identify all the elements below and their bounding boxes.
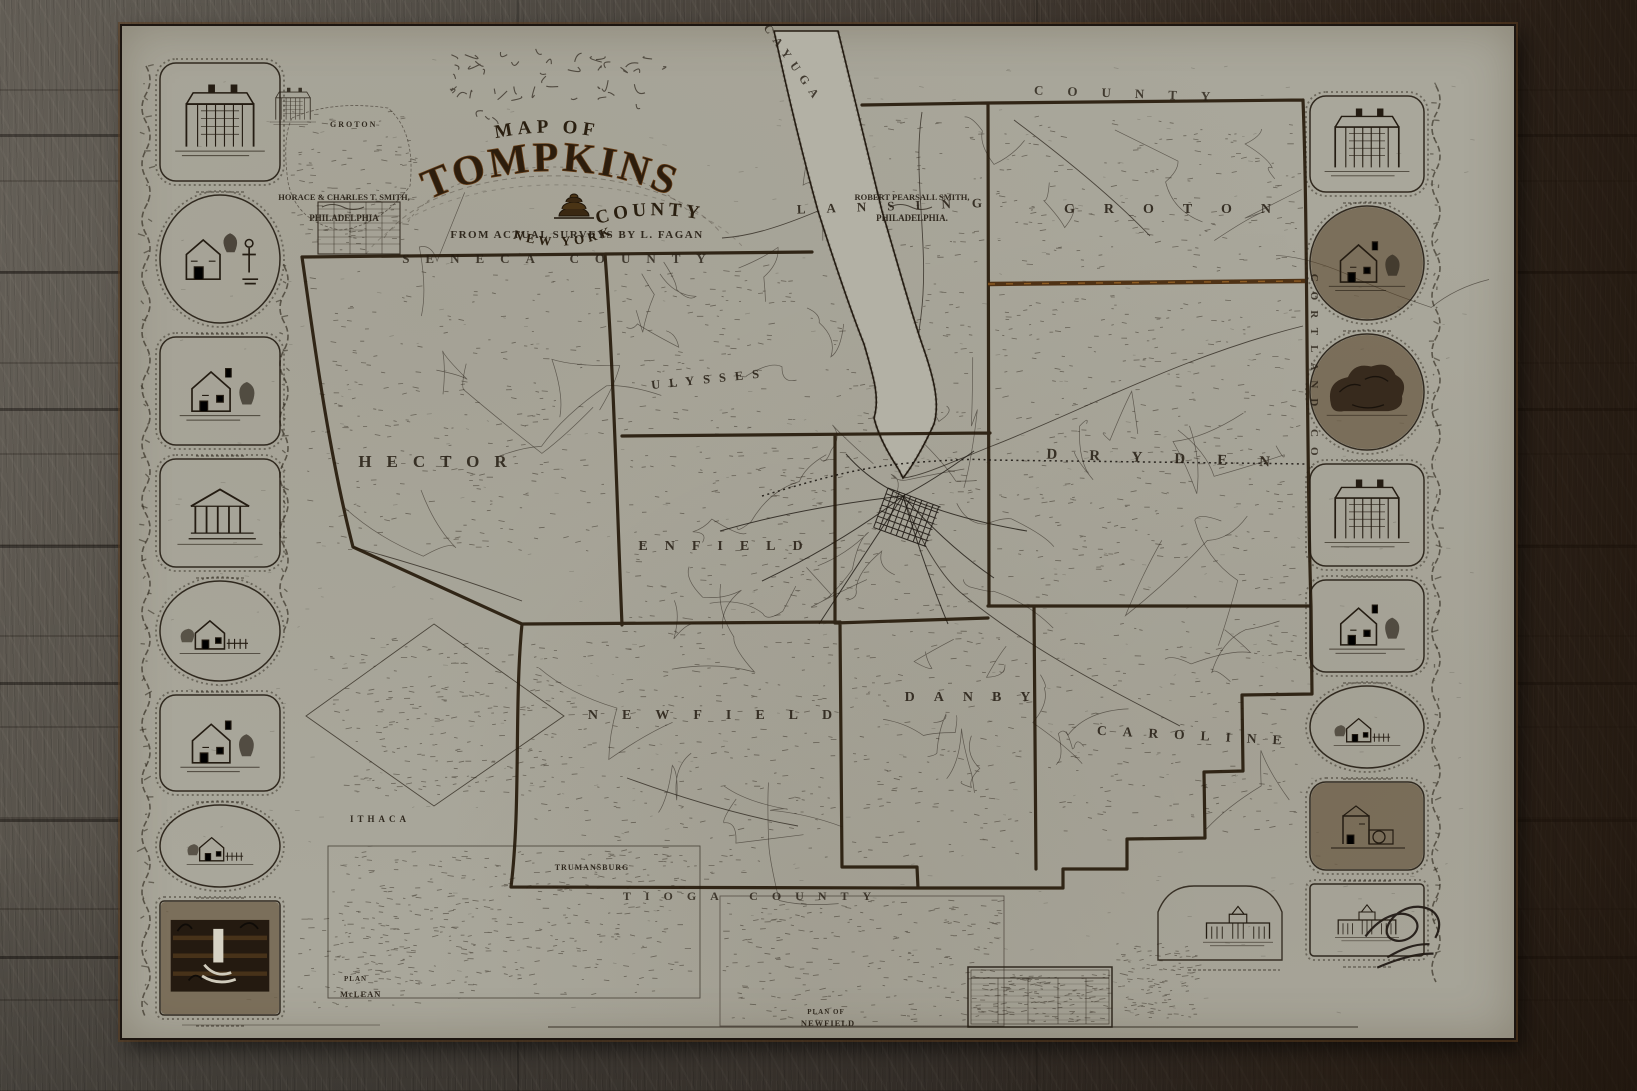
road-line <box>1103 391 1138 440</box>
road-line <box>552 359 620 417</box>
road-line <box>1195 516 1238 645</box>
beehive-icon <box>554 194 594 218</box>
county-label: TIOGA COUNTY <box>623 889 885 903</box>
road-line <box>737 455 826 530</box>
road-line <box>847 551 895 600</box>
newfield-inset-label-1: PLAN OF <box>807 1008 845 1016</box>
engraving-detail <box>1306 460 1428 570</box>
cottage-vignette <box>156 577 284 692</box>
cottage-vignette-sketch <box>180 621 261 653</box>
road-line <box>498 386 661 457</box>
map-sheet-panel: MAP OF TOMPKINS COUNTY NEW YORK <box>120 24 1516 1040</box>
farmhouse-vignette <box>156 801 284 898</box>
road-line <box>345 490 456 556</box>
radiating-road <box>720 496 903 531</box>
road-line <box>964 357 977 488</box>
engraving-detail <box>1310 464 1424 566</box>
engraving-detail <box>160 459 280 567</box>
ithaca-inset-label: ITHACA <box>350 814 410 824</box>
engraving-detail <box>156 801 284 891</box>
engraving-detail <box>1311 783 1423 869</box>
house-and-statue-vignette <box>156 191 284 334</box>
township-label: GROTON <box>1064 202 1300 217</box>
waterfall-vignette-sketch <box>171 920 270 992</box>
engraving-detail <box>156 577 284 685</box>
engraving-detail <box>1306 682 1428 772</box>
map-canvas: MAP OF TOMPKINS COUNTY NEW YORK <box>122 26 1514 1038</box>
road-line <box>674 600 746 639</box>
villa-with-trees-vignette <box>156 333 284 456</box>
vine-border <box>142 66 150 1018</box>
hotel-building-vignette <box>1158 886 1282 970</box>
cottage-vignette <box>1306 682 1428 779</box>
engraving-detail <box>874 488 941 547</box>
groton-inset-label: GROTON <box>330 120 377 129</box>
engraving-detail <box>1306 576 1428 676</box>
title-tompkins: TOMPKINS <box>415 135 686 209</box>
township-label: DANBY <box>905 690 1050 705</box>
township-label: ULYSSES <box>650 366 768 392</box>
road-line <box>821 425 874 464</box>
road-line <box>928 714 946 756</box>
road-line <box>987 646 1007 677</box>
groton-inset-building-sketch <box>270 88 316 124</box>
greek-temple-vignette <box>156 455 284 578</box>
road-line <box>436 351 467 395</box>
engraving-detail <box>1306 92 1428 196</box>
trumansburg-inset-label: TRUMANSBURG <box>555 863 630 872</box>
portico-building-vignette <box>1306 92 1428 203</box>
groton-dryden-line <box>988 281 1305 284</box>
engraving-detail <box>1310 96 1424 192</box>
ithaca-village-grid <box>874 488 941 547</box>
mclean-inset-label-2: McLEAN <box>340 989 381 999</box>
road-line <box>627 324 679 347</box>
lake-body <box>774 31 936 478</box>
boundary-lines <box>302 100 1312 888</box>
residence-vignette <box>156 691 284 802</box>
road-line <box>688 567 741 629</box>
radiating-road <box>819 496 903 624</box>
vine-border <box>1432 86 1440 982</box>
hotel-building-sketch <box>1203 906 1273 945</box>
survey-credit: FROM ACTUAL SURVEYS BY L. FAGAN <box>450 229 703 241</box>
mclean-inset-label-1: PLAN <box>344 975 367 983</box>
publisher-right-city: PHILADELPHIA. <box>876 213 948 223</box>
columned-hall-vignette <box>1306 880 1428 967</box>
residence-vignette-sketch <box>1329 605 1405 653</box>
road-line <box>963 579 1053 628</box>
road-line <box>1033 675 1082 764</box>
road-line <box>914 639 954 668</box>
road-line <box>724 786 842 827</box>
road-line <box>636 274 654 333</box>
portico-building-vignette-sketch <box>1325 109 1410 176</box>
engraving-detail <box>156 59 284 185</box>
township-label: NEWFIELD <box>588 708 856 723</box>
road-line <box>1207 750 1290 829</box>
road-line <box>883 716 957 736</box>
road-line <box>1165 630 1251 664</box>
cayuga-lake <box>774 31 936 478</box>
road-line <box>1212 621 1280 682</box>
township-label: HECTOR <box>358 452 521 471</box>
road-line <box>724 799 804 843</box>
road-line <box>806 567 867 607</box>
vine-border <box>280 266 288 630</box>
county-label: SENECA COUNTY <box>402 251 722 266</box>
greek-temple-vignette-sketch <box>177 489 262 544</box>
framed-antique-map-photo: MAP OF TOMPKINS COUNTY NEW YORK <box>0 0 1637 1091</box>
engraving-detail <box>160 805 280 887</box>
waterfall-vignette <box>156 897 284 1026</box>
engraving-detail <box>160 63 280 181</box>
engraving-detail <box>1311 207 1423 319</box>
engraving-detail <box>1310 686 1424 768</box>
college-building-vignette-sketch <box>175 85 265 156</box>
road-line <box>1125 516 1247 616</box>
mill-vignette <box>1306 778 1428 881</box>
farmhouse-vignette-sketch <box>187 838 254 865</box>
engraving-detail <box>156 455 284 571</box>
stream-line <box>627 778 798 826</box>
township-label: ENFIELD <box>638 539 819 554</box>
villa-with-trees-vignette-sketch <box>180 369 261 421</box>
public-building-vignette-sketch <box>1325 480 1410 547</box>
groton-village-inset: GROTON <box>270 88 411 254</box>
township-boundaries <box>302 100 1312 888</box>
homestead-vignette <box>1306 202 1428 331</box>
engraving-detail <box>156 691 284 795</box>
public-building-vignette <box>1306 460 1428 577</box>
ithaca-village-inset: ITHACA <box>306 624 564 824</box>
residence-vignette-sketch <box>180 721 259 772</box>
road-line <box>659 753 692 812</box>
residence-vignette <box>1306 576 1428 683</box>
vine-leaves <box>1428 83 1444 953</box>
engraving-detail <box>160 695 280 791</box>
cottage-vignette-sketch <box>1334 719 1401 746</box>
engraving-detail <box>160 337 280 445</box>
road-line <box>957 503 1054 546</box>
road-line <box>1245 129 1275 179</box>
township-label: DRYDEN <box>1046 447 1302 472</box>
mclean-plan-inset: PLAN McLEAN <box>340 975 381 999</box>
ithaca-inset-outline <box>306 624 564 806</box>
stream-line <box>353 547 522 601</box>
wooded-grove-vignette <box>1306 330 1428 461</box>
engraving-detail <box>156 333 284 449</box>
road-line <box>965 117 1025 165</box>
county-label: CORTLAND CO. <box>1308 274 1320 479</box>
engraving-detail <box>160 581 280 681</box>
road-line <box>660 262 696 298</box>
engraving-detail <box>1310 580 1424 672</box>
college-building-vignette <box>156 59 284 192</box>
road-line <box>463 364 593 454</box>
publisher-left-name: HORACE & CHARLES T. SMITH, <box>278 192 409 202</box>
road-line <box>807 308 844 357</box>
title-foliage-scribble <box>450 49 666 124</box>
house-and-statue-vignette-sketch <box>186 233 258 283</box>
